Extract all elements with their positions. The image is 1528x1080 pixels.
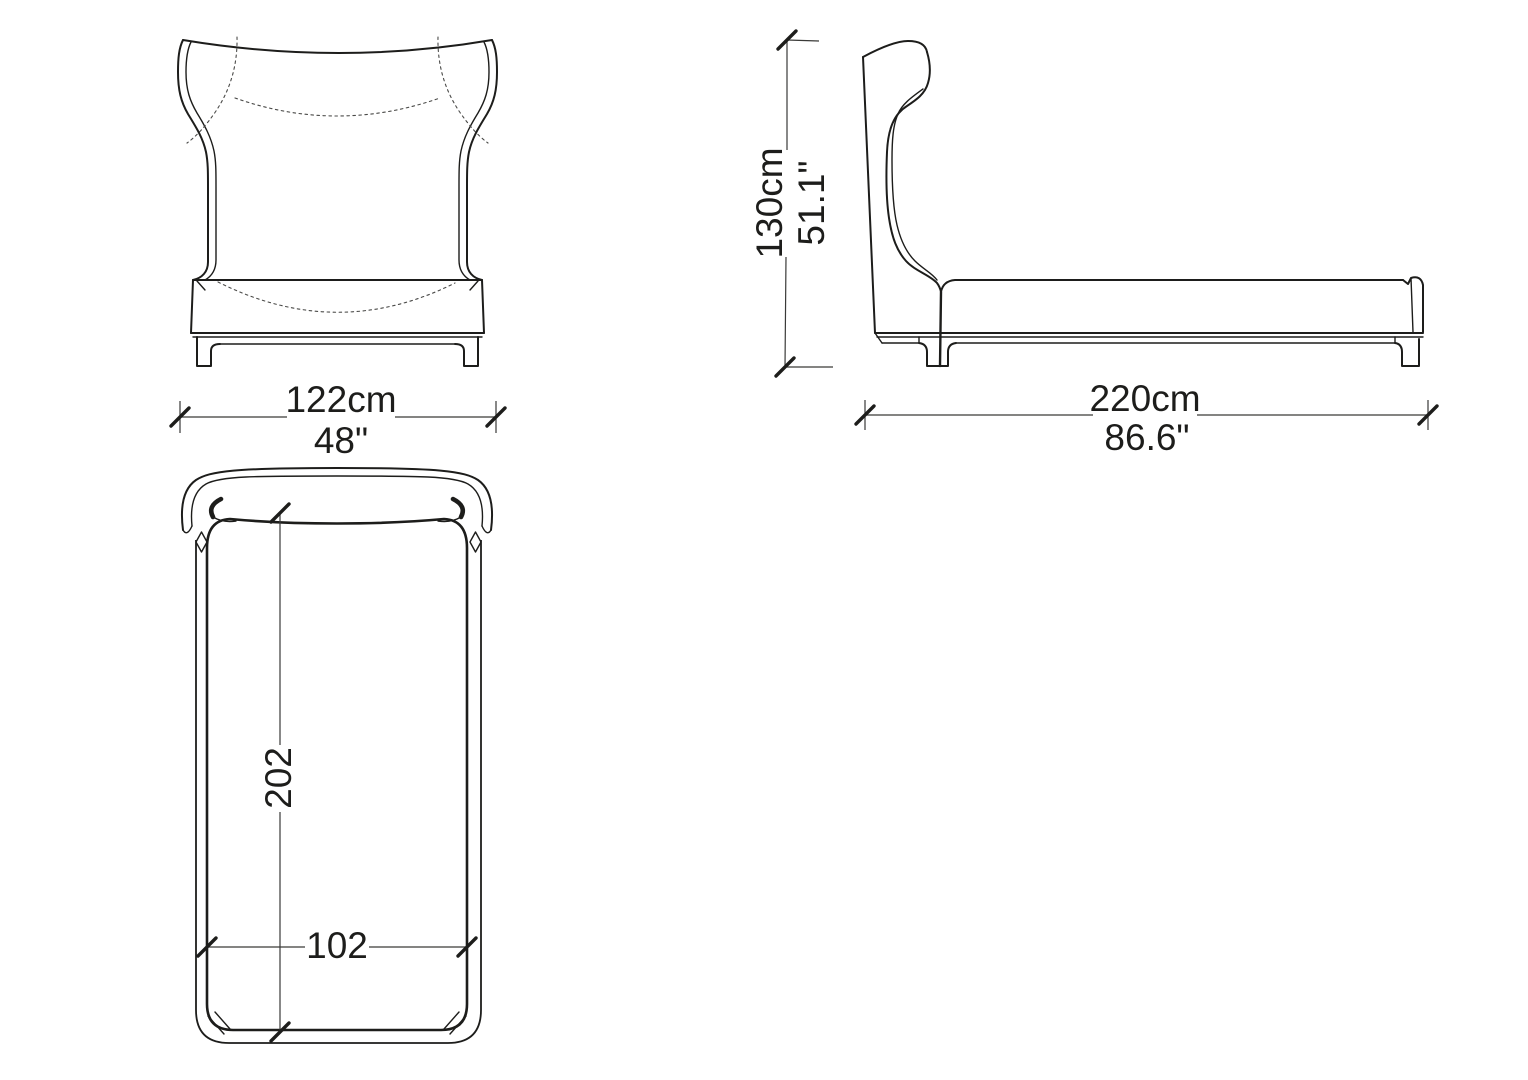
technical-drawing-sheet: 122cm 48" (0, 0, 1528, 1080)
plan-view-drawing: 202 102 (150, 460, 530, 1080)
side-height-inch-label: 51.1" (791, 160, 832, 245)
side-length-cm-label: 220cm (1089, 378, 1200, 419)
side-height-dimension: 130cm 51.1" (749, 31, 833, 376)
plan-width-label: 102 (306, 925, 368, 966)
side-height-cm-label: 130cm (749, 147, 790, 258)
front-width-dimension: 122cm 48" (171, 379, 505, 461)
side-length-dimension: 220cm 86.6" (856, 378, 1437, 458)
front-stitch-lines (187, 37, 488, 312)
front-width-inch-label: 48" (314, 420, 368, 461)
side-view-drawing: 130cm 51.1" 220cm 86.6" (740, 10, 1480, 470)
plan-width-dimension: 102 (198, 925, 476, 966)
front-base-outline (191, 280, 484, 337)
side-legs (875, 333, 1419, 366)
plan-length-dimension: 202 (258, 504, 299, 1041)
front-view-drawing: 122cm 48" (150, 10, 530, 470)
front-legs (197, 337, 478, 366)
front-headboard-outline (178, 40, 497, 280)
side-length-inch-label: 86.6" (1104, 417, 1189, 458)
side-platform-outline (875, 277, 1423, 366)
plan-length-label: 202 (258, 747, 299, 809)
front-width-cm-label: 122cm (285, 379, 396, 420)
side-headboard-outline (863, 41, 941, 333)
plan-frame-outline (196, 532, 481, 1043)
